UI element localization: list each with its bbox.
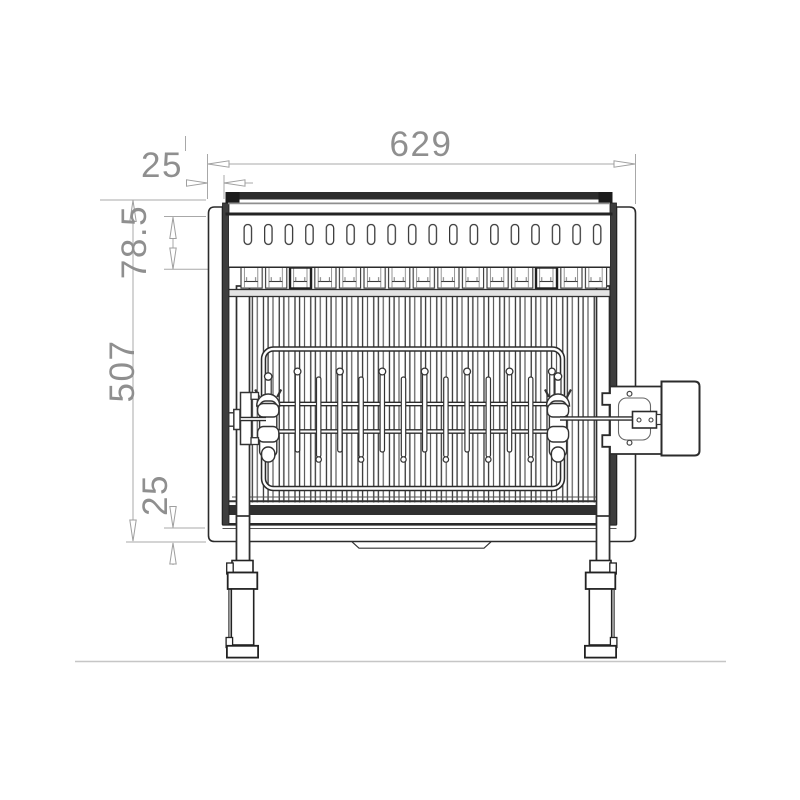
vent-slots [244, 224, 603, 246]
right-leg-lower [597, 516, 610, 562]
lid-corner-right [599, 192, 613, 203]
mount-screw-bottom [627, 440, 632, 445]
drip-tray-handle [352, 542, 491, 548]
dimension-total-width: 629 [390, 125, 453, 164]
mount-screw-top [627, 391, 632, 396]
technical-drawing-page: 629 25 78.5 507 25 [0, 0, 800, 800]
rotisserie-grill-drawing: 629 25 78.5 507 25 [0, 0, 800, 800]
left-leg-lower [237, 516, 250, 562]
dimension-panel-inset: 25 [141, 146, 183, 185]
skewer-notch-rail [240, 267, 608, 290]
dimension-body-height: 507 [103, 340, 142, 403]
right-foot [585, 561, 617, 658]
notch-rail-front-bar [229, 290, 611, 297]
dimension-vent-band-height: 78.5 [115, 205, 154, 279]
spit-knob [234, 410, 240, 430]
lid-corner-left [226, 192, 240, 203]
firebox-wall-right [610, 203, 617, 525]
left-foot [226, 561, 258, 658]
dimension-base-skirt: 25 [136, 474, 175, 516]
lid-rail [226, 192, 613, 200]
firebox-wall-left [223, 203, 230, 525]
rotisserie-motor [662, 382, 700, 456]
firebox-bottom-band [229, 505, 611, 515]
